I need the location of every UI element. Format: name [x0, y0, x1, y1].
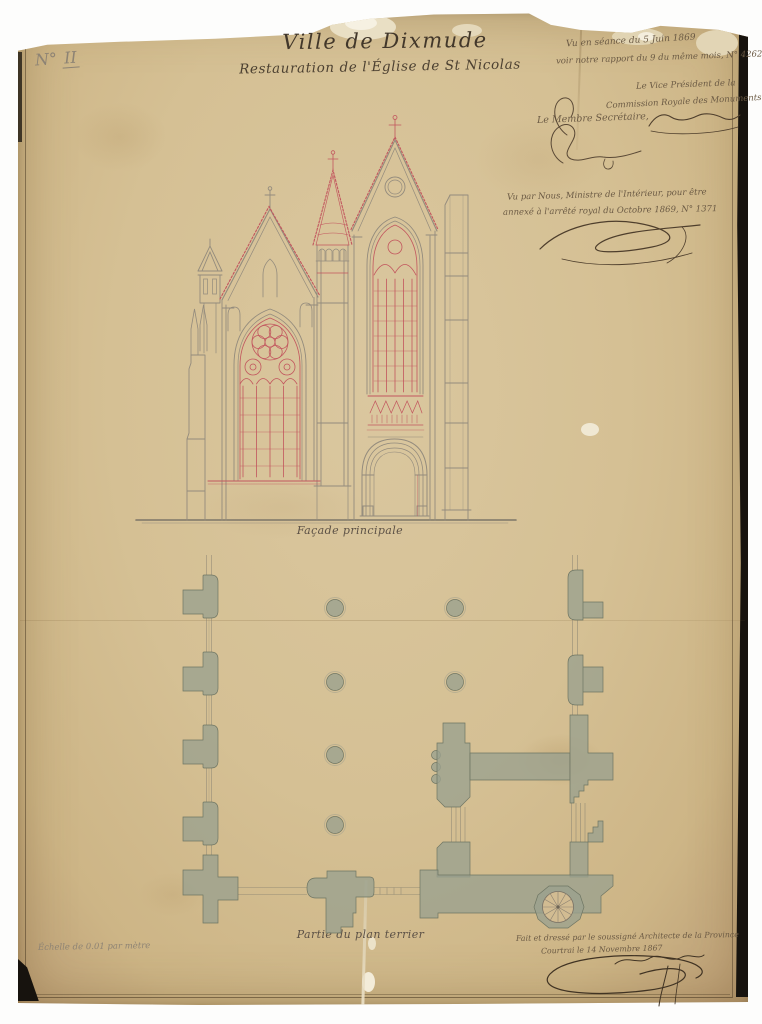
white-spot	[581, 423, 599, 436]
plan-masonry	[183, 570, 613, 933]
floor-plan-drawing	[140, 555, 660, 935]
sheet-number-value: II	[61, 47, 79, 68]
elevation-red-ink	[208, 116, 438, 517]
scanned-sheet: N° II Ville de Dixmude Restauration de l…	[0, 0, 762, 1024]
sheet-number: N° II	[34, 48, 79, 69]
left-edge-sliver	[18, 52, 22, 142]
signature-minister	[532, 215, 712, 273]
spiral-stair	[543, 892, 574, 923]
signature-architect	[520, 948, 720, 1010]
sheet-number-prefix: N°	[34, 49, 57, 69]
plan-wall-lines	[207, 555, 586, 895]
elevation-drawing	[130, 103, 520, 528]
signature-secretary	[545, 95, 660, 175]
scale-note: Échelle de 0.01 par mètre	[38, 942, 150, 953]
tear-patch	[362, 972, 375, 992]
right-black-edge	[736, 32, 748, 997]
signature-vice-president	[645, 108, 745, 138]
page-title: Ville de Dixmude	[225, 28, 545, 54]
tear-patch	[345, 16, 377, 30]
